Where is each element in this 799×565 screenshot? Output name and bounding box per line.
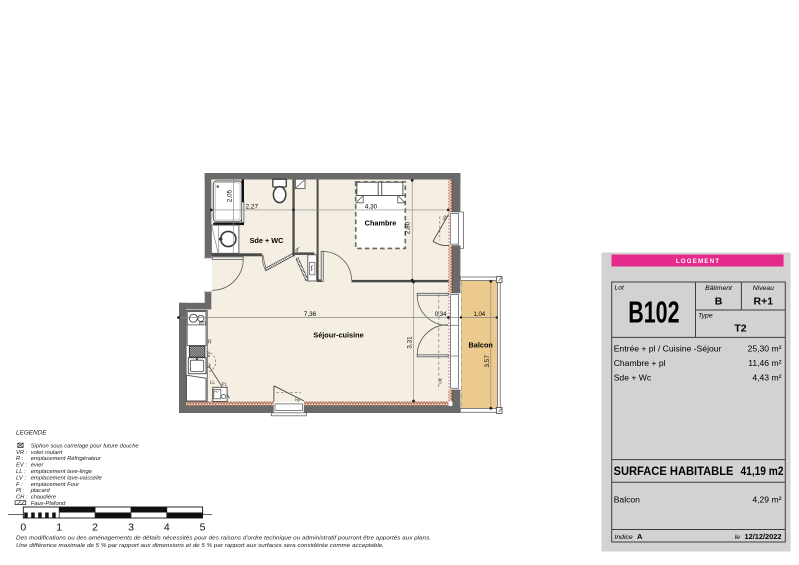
svg-text:3,57: 3,57 bbox=[484, 355, 491, 368]
svg-text:4: 4 bbox=[164, 522, 170, 534]
svg-text:0: 0 bbox=[20, 522, 26, 534]
svg-text:3,31: 3,31 bbox=[407, 336, 414, 349]
svg-text:A: A bbox=[637, 532, 643, 541]
svg-text:LOGEMENT: LOGEMENT bbox=[676, 258, 720, 265]
svg-text:Siphon sous carrelage pour fut: Siphon sous carrelage pour future douche bbox=[31, 444, 140, 450]
svg-text:emplacement Four: emplacement Four bbox=[31, 482, 80, 488]
svg-text:B102: B102 bbox=[628, 295, 679, 330]
svg-text:emplacement lave-vaisselle: emplacement lave-vaisselle bbox=[31, 475, 103, 481]
svg-text:41,19 m2: 41,19 m2 bbox=[741, 464, 784, 478]
svg-text:2,27: 2,27 bbox=[246, 203, 259, 210]
svg-text:PL: PL bbox=[222, 382, 228, 387]
svg-text:LEGENDE: LEGENDE bbox=[16, 430, 47, 437]
svg-text:F :: F : bbox=[16, 482, 23, 488]
svg-text:chaudière: chaudière bbox=[31, 495, 57, 501]
svg-text:R: R bbox=[208, 340, 212, 346]
svg-text:EV :: EV : bbox=[16, 463, 27, 469]
svg-text:évier: évier bbox=[31, 463, 45, 469]
svg-text:Pl :: Pl : bbox=[16, 488, 25, 494]
svg-text:0,34: 0,34 bbox=[435, 312, 447, 318]
svg-text:4,43 m²: 4,43 m² bbox=[752, 372, 781, 382]
svg-text:Balcon: Balcon bbox=[614, 495, 640, 505]
svg-text:placard: placard bbox=[30, 488, 51, 494]
svg-text:Chambre: Chambre bbox=[365, 219, 397, 228]
svg-text:Type: Type bbox=[698, 313, 713, 320]
svg-text:Balcon: Balcon bbox=[469, 341, 493, 350]
svg-text:Chambre + pl: Chambre + pl bbox=[614, 358, 666, 368]
svg-text:LL :: LL : bbox=[16, 469, 26, 475]
svg-text:Bâtiment: Bâtiment bbox=[705, 285, 733, 292]
svg-text:Indice: Indice bbox=[615, 534, 633, 541]
svg-text:Séjour-cuisine: Séjour-cuisine bbox=[313, 330, 363, 339]
svg-text:LV :: LV : bbox=[16, 475, 26, 481]
svg-text:2: 2 bbox=[92, 522, 98, 534]
svg-text:Des modifications ou des aména: Des modifications ou des aménagements de… bbox=[16, 536, 431, 542]
svg-text:T2: T2 bbox=[734, 323, 746, 335]
svg-text:R :: R : bbox=[16, 456, 24, 462]
svg-text:12/12/2022: 12/12/2022 bbox=[745, 532, 782, 541]
svg-text:7,36: 7,36 bbox=[304, 311, 317, 318]
svg-text:R+1: R+1 bbox=[754, 296, 774, 308]
svg-text:3: 3 bbox=[128, 522, 134, 534]
svg-text:VR :: VR : bbox=[16, 450, 28, 456]
svg-text:Faux-Plafond: Faux-Plafond bbox=[31, 501, 66, 507]
svg-text:11,46 m²: 11,46 m² bbox=[748, 358, 781, 368]
svg-text:4,30: 4,30 bbox=[365, 203, 378, 210]
svg-text:Entrée + pl / Cuisine -Séjour: Entrée + pl / Cuisine -Séjour bbox=[614, 344, 722, 354]
svg-text:B: B bbox=[715, 296, 723, 308]
svg-text:Sde + Wc: Sde + Wc bbox=[614, 372, 652, 382]
svg-text:EV: EV bbox=[206, 351, 211, 357]
svg-text:d´: d´ bbox=[296, 248, 301, 254]
svg-text:4,29 m²: 4,29 m² bbox=[752, 495, 781, 505]
svg-text:emplacement lave-linge: emplacement lave-linge bbox=[31, 469, 93, 475]
svg-text:1,04: 1,04 bbox=[473, 312, 485, 318]
svg-text:volet roulant: volet roulant bbox=[31, 450, 63, 456]
svg-text:SURFACE HABITABLE: SURFACE HABITABLE bbox=[614, 464, 734, 478]
svg-text:1: 1 bbox=[56, 522, 62, 534]
svg-text:LL: LL bbox=[210, 379, 216, 384]
svg-text:25,30 m²: 25,30 m² bbox=[748, 344, 782, 354]
svg-text:5: 5 bbox=[200, 522, 206, 534]
svg-text:2,80: 2,80 bbox=[405, 221, 412, 234]
svg-text:2,05: 2,05 bbox=[227, 189, 234, 202]
svg-text:le: le bbox=[735, 534, 741, 541]
svg-text:Niveau: Niveau bbox=[753, 285, 774, 292]
svg-text:VR: VR bbox=[438, 378, 443, 384]
svg-text:Sde + WC: Sde + WC bbox=[250, 236, 285, 245]
svg-text:Lot: Lot bbox=[615, 285, 626, 292]
svg-text:emplacement Réfrigérateur: emplacement Réfrigérateur bbox=[31, 456, 102, 462]
svg-text:CH :: CH : bbox=[16, 495, 28, 501]
svg-text:Une différence maximale de 5 %: Une différence maximale de 5 % par rappo… bbox=[16, 543, 384, 549]
